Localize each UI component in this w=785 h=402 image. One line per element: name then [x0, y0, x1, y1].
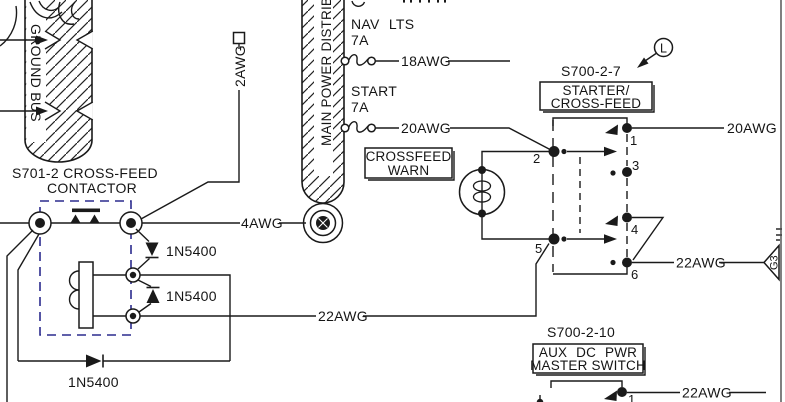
contact-1: 1 [605, 123, 637, 148]
wiper-lower [549, 234, 618, 245]
terminal-5-label: 5 [535, 241, 542, 256]
diode-label: 1N5400 [166, 243, 217, 259]
terminal-6-label: 6 [631, 267, 638, 282]
coil-terminal-upper [126, 268, 140, 282]
coil-terminal-lower [126, 309, 140, 323]
detail-letter: L [660, 42, 667, 56]
wiring-diagram: GROUND BUS MAIN POWER DISTRIBUT [0, 0, 785, 402]
breaker-rating: 7A [351, 99, 369, 115]
wire-label-20awg-sw: 20AWG [727, 120, 777, 136]
breaker-name: NAV LTS [351, 16, 414, 32]
diode-label: 1N5400 [68, 374, 119, 390]
switch-label-box: STARTER/ CROSS-FEED [540, 82, 654, 112]
main-bus-terminal [304, 204, 343, 243]
contact-6: 6 [610, 258, 638, 283]
terminal-2-label: 2 [533, 151, 540, 166]
cutoff-breaker-arc [352, 1, 365, 6]
cutoff-terminal [537, 395, 543, 402]
terminal-4-label: 4 [631, 222, 638, 237]
circuit-breaker-start: START 7A 20AWG [341, 83, 550, 150]
contact-1: 1 [604, 387, 635, 402]
switch-label2: MASTER SWITCH [530, 358, 646, 373]
wire-label-2awg: 2AWG [232, 45, 248, 87]
diode-bottom: 1N5400 [18, 355, 230, 391]
circuit-breaker-nav-lts: NAV LTS 7A 18AWG [341, 16, 510, 69]
switch-frame [553, 118, 627, 126]
diagram-canvas: GROUND BUS MAIN POWER DISTRIBUT [0, 0, 785, 402]
switch-label-box: AUX DC PWR MASTER SWITCH [530, 344, 646, 375]
cutoff-text-fragment [403, 0, 446, 3]
switch-frame [551, 381, 622, 388]
contactor-coil [70, 262, 127, 328]
contactor-ref: S701-2 CROSS-FEED [12, 165, 158, 181]
terminal-3-label: 3 [632, 158, 639, 173]
aux-dc-pwr-master-switch: S700-2-10 AUX DC PWR MASTER SWITCH 1 22A… [530, 324, 766, 402]
contact-4: 4 [605, 213, 638, 238]
breaker-name: START [351, 83, 397, 99]
wire-label-22awg: 22AWG [318, 308, 368, 324]
detail-callout: L [637, 39, 673, 69]
starter-crossfeed-switch: S700-2-7 L STARTER/ CROSS-FEED [533, 39, 777, 283]
contact-3: 3 [610, 158, 639, 177]
diode-label: 1N5400 [166, 288, 217, 304]
terminal-1-label: 1 [628, 392, 635, 402]
warn-line2: WARN [388, 163, 430, 178]
breaker-rating: 7A [351, 32, 369, 48]
wire-label-22awg-sw: 22AWG [676, 255, 726, 271]
diode-mid: 1N5400 [138, 280, 217, 312]
ground-bus: GROUND BUS [0, 0, 93, 162]
flag-id: G3 [769, 255, 781, 270]
wire-label-4awg: 4AWG [241, 215, 283, 231]
wiper-upper [549, 146, 618, 157]
wire-2awg: 2AWG [141, 33, 248, 220]
warn-line1: CROSSFEED [366, 149, 452, 164]
switch-ref: S700-2-7 [561, 63, 621, 79]
switch-label2: CROSS-FEED [551, 96, 642, 111]
switch-ref: S700-2-10 [547, 324, 615, 340]
main-power-bus-label: MAIN POWER DISTRIBUT [319, 0, 334, 146]
stud-drop-wire [7, 230, 33, 402]
wire-label-22awg-aux: 22AWG [682, 385, 732, 401]
crossfeed-warn-label: CROSSFEED WARN [365, 148, 454, 180]
contactor-contacts [71, 209, 101, 224]
wire-label-20awg: 20AWG [401, 120, 451, 136]
g3-flag: G3 [764, 229, 782, 280]
contactor-name: CONTACTOR [47, 180, 137, 196]
stud-drop-wire [18, 234, 39, 361]
crossfeed-contactor: S701-2 CROSS-FEED CONTACTOR 4AWG [0, 165, 306, 402]
terminal-1-label: 1 [630, 133, 637, 148]
diode-top: 1N5400 [136, 229, 217, 269]
wire-label-18awg: 18AWG [401, 53, 451, 69]
